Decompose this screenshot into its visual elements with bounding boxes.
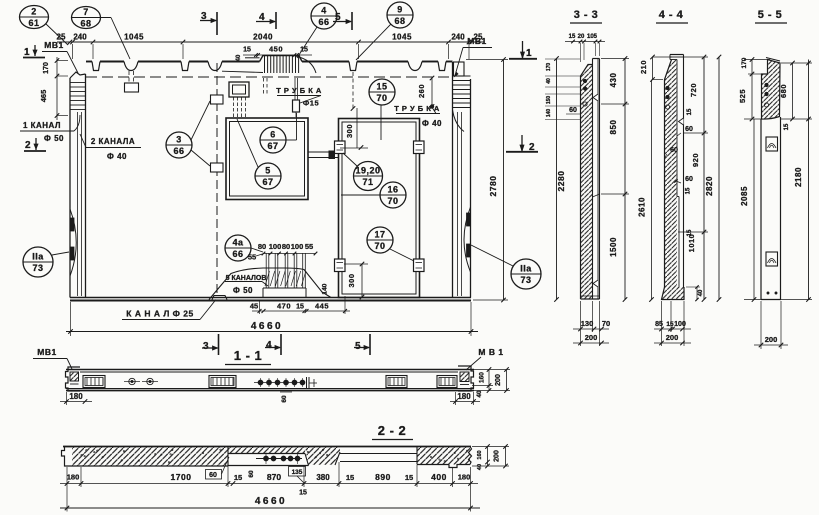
svg-text:5: 5 [355,341,361,352]
svg-text:Ф 40: Ф 40 [107,152,127,161]
svg-text:60: 60 [248,470,255,478]
svg-text:3 - 3: 3 - 3 [574,9,599,21]
svg-text:6: 6 [270,130,276,140]
svg-text:61: 61 [28,18,39,28]
svg-text:60: 60 [670,147,678,154]
svg-text:60: 60 [209,472,217,479]
svg-text:16: 16 [387,185,398,195]
svg-text:180: 180 [67,473,80,482]
svg-text:5: 5 [265,166,271,176]
svg-text:15: 15 [243,47,251,54]
svg-text:45: 45 [250,302,258,311]
svg-text:1 - 1: 1 - 1 [234,348,263,363]
svg-text:7: 7 [83,7,89,17]
svg-text:IIа: IIа [32,252,44,262]
svg-text:3: 3 [203,341,209,352]
svg-text:1: 1 [526,48,532,59]
svg-text:1: 1 [24,47,30,58]
svg-text:40: 40 [546,78,552,84]
svg-text:180: 180 [457,392,471,401]
svg-text:2820: 2820 [705,176,714,196]
svg-text:4: 4 [321,6,327,16]
svg-text:15: 15 [569,34,576,40]
svg-text:200: 200 [585,333,598,342]
svg-text:15: 15 [405,473,413,482]
svg-text:200: 200 [765,335,778,344]
svg-text:2280: 2280 [556,171,566,192]
svg-text:40: 40 [477,464,483,470]
svg-text:МВ1: МВ1 [467,36,486,46]
svg-text:70: 70 [387,196,398,206]
svg-text:60: 60 [569,107,577,114]
svg-text:9: 9 [397,5,403,15]
svg-text:4660: 4660 [255,496,287,507]
svg-text:19,20: 19,20 [355,166,380,176]
svg-text:1045: 1045 [124,33,144,42]
svg-text:400: 400 [431,472,447,482]
svg-text:1010: 1010 [687,234,696,253]
svg-text:380: 380 [316,473,330,482]
svg-text:2180: 2180 [794,167,803,187]
svg-text:67: 67 [262,177,273,187]
svg-text:170: 170 [43,62,50,74]
svg-text:60: 60 [685,176,693,183]
svg-text:15: 15 [784,123,790,130]
svg-text:4а: 4а [232,238,244,248]
svg-text:430: 430 [609,73,618,88]
svg-text:2085: 2085 [740,186,749,206]
svg-text:МВ1: МВ1 [37,347,56,357]
svg-text:Ф15: Ф15 [303,99,319,108]
svg-text:1700: 1700 [171,472,192,482]
svg-text:70: 70 [376,93,387,103]
svg-text:1045: 1045 [392,33,412,42]
svg-text:60: 60 [281,395,288,403]
svg-text:450: 450 [269,45,283,54]
svg-text:М В 1: М В 1 [478,347,503,357]
svg-text:105: 105 [587,34,598,40]
svg-text:200: 200 [494,450,501,462]
svg-text:70: 70 [602,319,610,328]
svg-text:300: 300 [347,273,356,287]
svg-text:4 - 4: 4 - 4 [659,9,684,21]
svg-text:4: 4 [266,340,272,351]
svg-text:2 - 2: 2 - 2 [378,423,407,438]
svg-text:160: 160 [477,450,483,459]
svg-text:Ф 50: Ф 50 [233,286,253,295]
svg-text:135: 135 [292,469,303,476]
svg-text:4660: 4660 [251,321,283,332]
svg-text:80: 80 [258,242,266,251]
svg-text:60: 60 [685,126,693,133]
svg-text:920: 920 [691,153,700,167]
svg-text:150: 150 [546,96,552,105]
svg-text:70: 70 [374,241,385,251]
svg-text:160: 160 [479,372,486,383]
svg-text:260: 260 [417,84,426,98]
svg-text:3: 3 [176,135,182,145]
svg-text:15: 15 [234,473,242,482]
svg-text:IIа: IIа [520,264,532,274]
svg-text:2 КАНАЛА: 2 КАНАЛА [91,137,135,146]
svg-text:170: 170 [546,63,552,72]
svg-text:2780: 2780 [488,176,498,197]
svg-text:73: 73 [520,275,531,285]
svg-text:К А Н А Л Ф 25: К А Н А Л Ф 25 [126,309,193,319]
svg-text:20: 20 [578,34,585,40]
svg-text:100: 100 [291,242,304,251]
svg-text:Ф 50: Ф 50 [44,134,64,143]
svg-text:525: 525 [738,89,747,103]
svg-text:55: 55 [305,242,313,251]
svg-text:МВ1: МВ1 [44,40,63,50]
svg-text:470: 470 [277,302,291,311]
svg-text:1500: 1500 [609,237,618,257]
svg-text:2610: 2610 [638,197,647,217]
svg-text:66: 66 [173,146,184,156]
svg-text:2: 2 [25,140,31,151]
svg-text:680: 680 [779,84,788,98]
svg-text:720: 720 [689,83,698,97]
svg-text:890: 890 [375,472,391,482]
svg-text:80: 80 [282,242,290,251]
svg-text:140: 140 [322,283,329,294]
svg-text:870: 870 [267,472,281,482]
svg-text:170: 170 [741,57,748,68]
svg-text:5 КАНАЛОВ: 5 КАНАЛОВ [226,275,267,282]
svg-text:66: 66 [232,249,243,259]
svg-text:15: 15 [296,304,304,311]
svg-text:66: 66 [318,17,329,27]
svg-text:200: 200 [495,374,502,386]
svg-text:68: 68 [80,19,91,29]
svg-text:Ф 40: Ф 40 [422,119,442,128]
svg-text:40: 40 [476,390,483,398]
svg-text:130: 130 [581,319,594,328]
svg-text:85: 85 [655,321,663,328]
svg-text:100: 100 [269,242,282,251]
svg-text:300: 300 [345,124,354,138]
svg-text:15: 15 [686,187,692,194]
svg-text:15: 15 [376,82,387,92]
svg-text:5 - 5: 5 - 5 [758,9,783,21]
svg-text:850: 850 [609,120,618,135]
svg-text:71: 71 [362,177,373,187]
svg-text:240: 240 [451,33,465,42]
svg-text:17: 17 [374,230,385,240]
svg-text:240: 240 [73,33,87,42]
svg-text:210: 210 [639,60,648,74]
svg-text:15: 15 [299,490,307,497]
svg-text:445: 445 [315,302,329,311]
svg-text:2040: 2040 [253,33,273,42]
svg-text:1 КАНАЛ: 1 КАНАЛ [23,121,61,130]
svg-text:200: 200 [666,333,679,342]
svg-text:15: 15 [300,47,308,54]
svg-text:68: 68 [394,16,405,26]
svg-text:2: 2 [31,7,37,17]
svg-text:15: 15 [666,321,674,328]
svg-text:67: 67 [267,141,278,151]
svg-text:40: 40 [236,54,242,61]
svg-text:465: 465 [39,90,48,103]
svg-text:73: 73 [32,263,43,273]
svg-text:15: 15 [346,473,354,482]
svg-text:100: 100 [674,321,686,328]
svg-text:Т Р У Б К А: Т Р У Б К А [276,86,322,95]
svg-text:180: 180 [69,392,83,401]
svg-text:140: 140 [546,109,552,118]
svg-text:40: 40 [698,289,704,296]
svg-text:15: 15 [687,108,693,115]
svg-text:180: 180 [458,473,471,482]
